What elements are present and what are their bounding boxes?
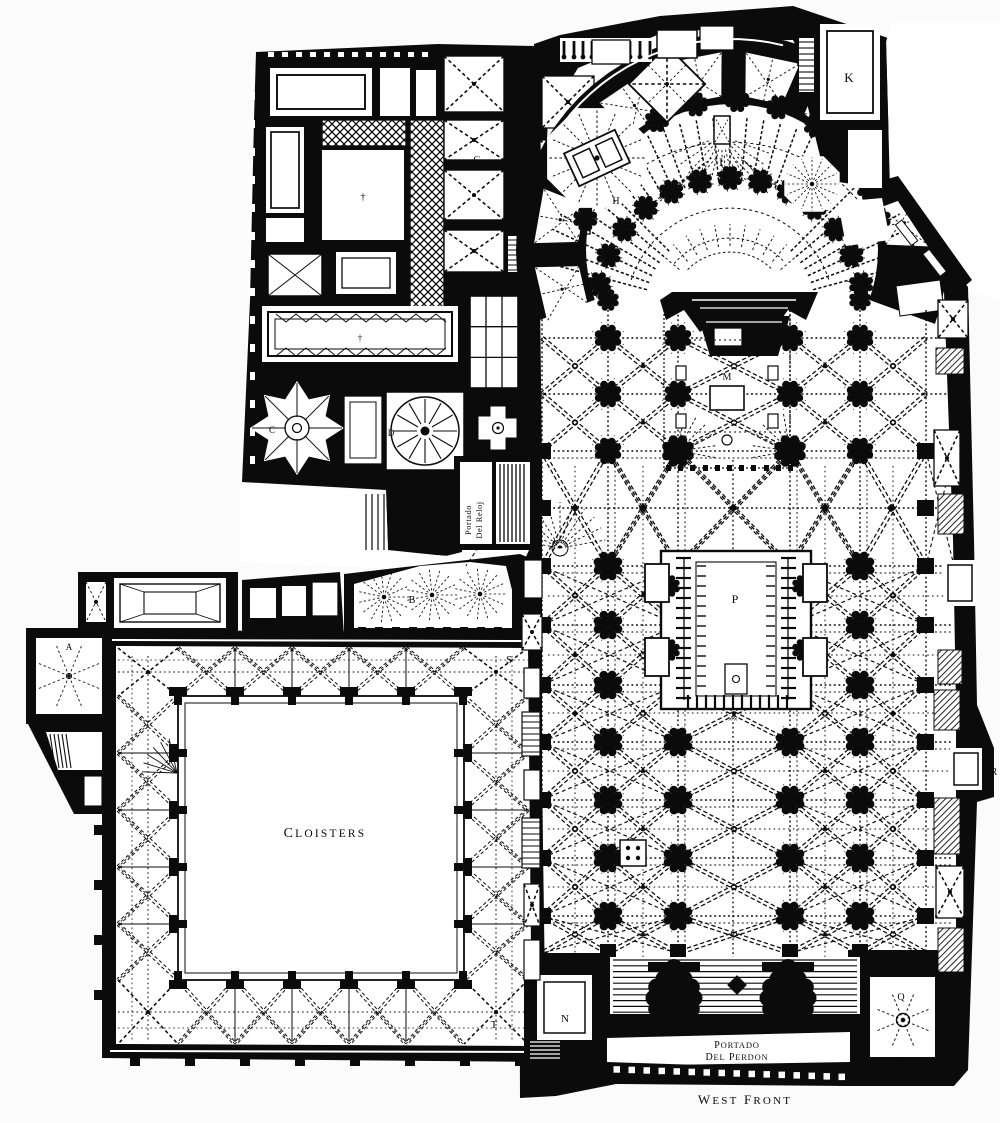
svg-text:K: K <box>844 70 854 85</box>
svg-text:T: T <box>491 1019 498 1031</box>
svg-text:R: R <box>991 767 998 778</box>
svg-text:M: M <box>723 372 732 383</box>
svg-text:†: † <box>361 192 366 203</box>
svg-text:†: † <box>358 333 363 343</box>
svg-text:S: S <box>506 654 512 666</box>
svg-text:Del Reloj: Del Reloj <box>474 501 484 538</box>
svg-text:G: G <box>473 155 480 166</box>
svg-text:P: P <box>732 592 739 606</box>
svg-text:I: I <box>719 155 723 169</box>
svg-text:DEL PERDON: DEL PERDON <box>706 1052 769 1063</box>
svg-text:CLOISTERS: CLOISTERS <box>284 826 367 841</box>
svg-text:C: C <box>269 425 275 435</box>
svg-text:××: ×× <box>728 714 738 724</box>
svg-text:N: N <box>561 1013 569 1025</box>
svg-text:WEST FRONT: WEST FRONT <box>698 1092 792 1107</box>
svg-text:H: H <box>612 196 619 207</box>
svg-text:D: D <box>388 428 395 438</box>
svg-text:Portado: Portado <box>463 505 473 535</box>
svg-text:A: A <box>66 642 73 652</box>
svg-text:PORTADO: PORTADO <box>714 1040 759 1051</box>
svg-text:Q: Q <box>897 992 905 1003</box>
svg-text:B: B <box>409 595 416 606</box>
